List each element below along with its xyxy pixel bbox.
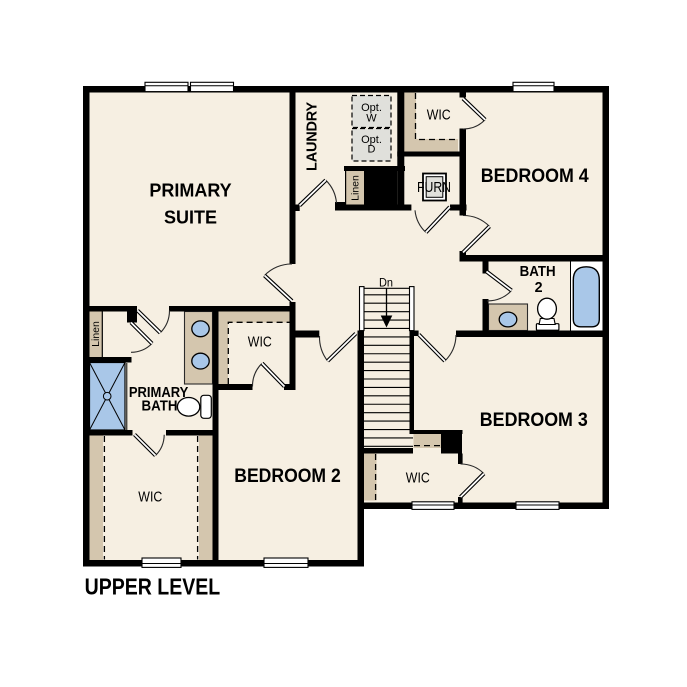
svg-text:WIC: WIC bbox=[248, 334, 272, 350]
svg-text:BATH: BATH bbox=[142, 398, 178, 414]
svg-text:BEDROOM 2: BEDROOM 2 bbox=[234, 465, 341, 487]
svg-text:UPPER LEVEL: UPPER LEVEL bbox=[85, 574, 221, 600]
svg-text:BATH: BATH bbox=[520, 264, 556, 280]
svg-text:2: 2 bbox=[535, 280, 543, 296]
svg-text:WIC: WIC bbox=[138, 490, 162, 506]
svg-text:Linen: Linen bbox=[350, 175, 362, 201]
svg-text:WIC: WIC bbox=[406, 471, 430, 487]
svg-text:BEDROOM 3: BEDROOM 3 bbox=[480, 409, 588, 431]
svg-text:SUITE: SUITE bbox=[164, 208, 217, 228]
svg-text:Dn: Dn bbox=[379, 275, 393, 289]
svg-text:FURN: FURN bbox=[417, 179, 451, 196]
svg-text:BEDROOM 4: BEDROOM 4 bbox=[481, 165, 589, 187]
svg-text:WIC: WIC bbox=[427, 108, 451, 124]
svg-text:Linen: Linen bbox=[90, 321, 102, 347]
svg-text:D: D bbox=[368, 144, 376, 156]
svg-text:PRIMARY: PRIMARY bbox=[149, 181, 231, 201]
svg-text:W: W bbox=[366, 112, 377, 124]
svg-text:LAUNDRY: LAUNDRY bbox=[305, 102, 321, 171]
